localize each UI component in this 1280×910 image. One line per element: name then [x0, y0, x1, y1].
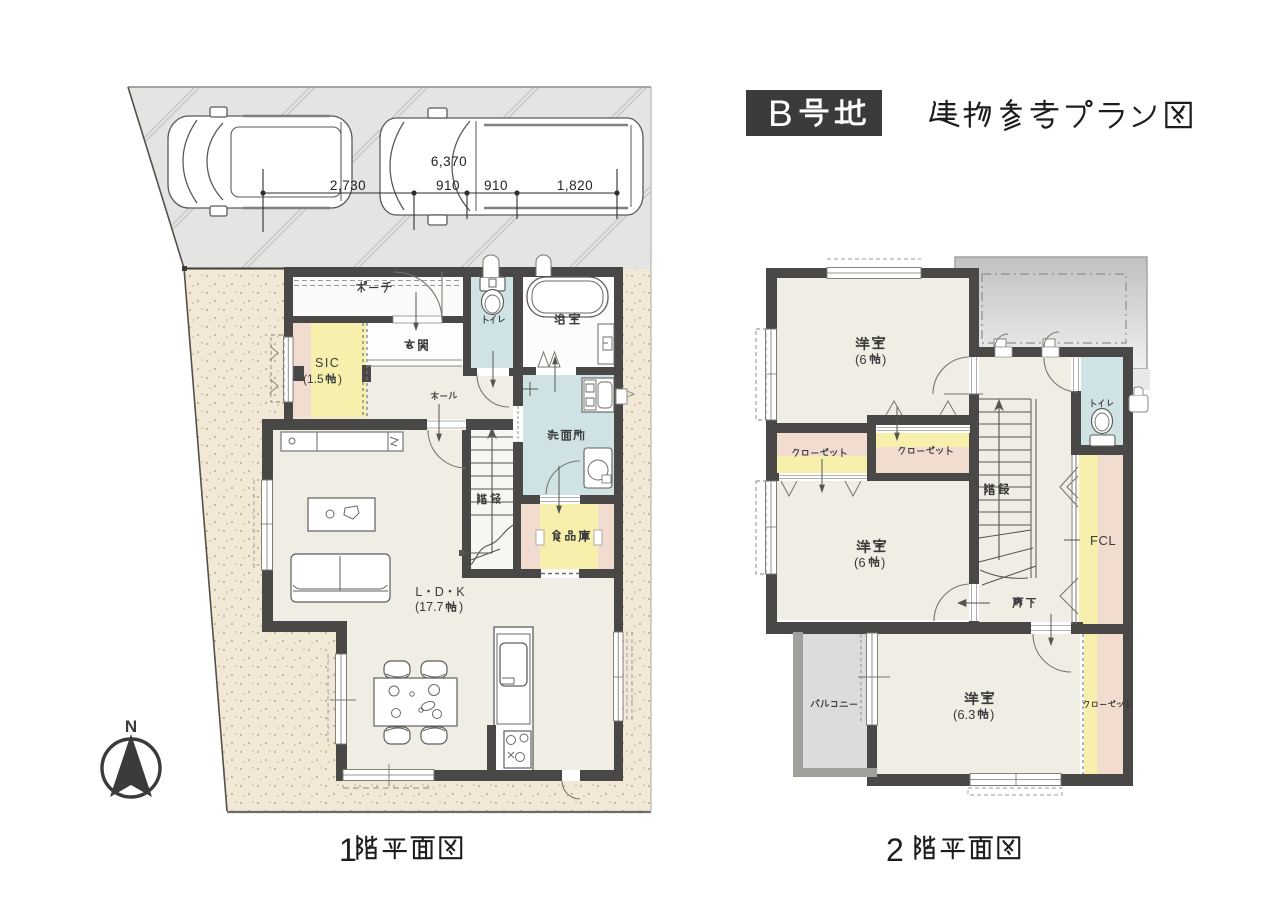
- svg-text:): ): [881, 555, 885, 570]
- svg-text:(6: (6: [854, 555, 866, 570]
- svg-text:910: 910: [436, 178, 460, 193]
- svg-text:(6.3: (6.3: [953, 707, 975, 722]
- svg-text:N: N: [125, 717, 137, 736]
- svg-text:SIC: SIC: [315, 356, 340, 370]
- svg-text:(6: (6: [855, 352, 867, 367]
- svg-text:): ): [459, 600, 463, 614]
- svg-text:FCL: FCL: [1090, 533, 1116, 548]
- svg-text:910: 910: [484, 178, 508, 193]
- svg-text:B: B: [768, 93, 793, 134]
- svg-text:): ): [990, 707, 994, 722]
- svg-text:(1.5: (1.5: [303, 372, 324, 386]
- svg-text:): ): [882, 352, 886, 367]
- svg-text:(17.7: (17.7: [415, 600, 444, 614]
- svg-text:1,820: 1,820: [557, 178, 593, 193]
- svg-text:2,730: 2,730: [330, 178, 366, 193]
- svg-text:6,370: 6,370: [431, 154, 467, 169]
- svg-text:L・D・K: L・D・K: [415, 585, 465, 599]
- svg-text:1: 1: [339, 832, 357, 868]
- svg-text:): ): [338, 372, 342, 386]
- svg-text:2: 2: [886, 832, 904, 868]
